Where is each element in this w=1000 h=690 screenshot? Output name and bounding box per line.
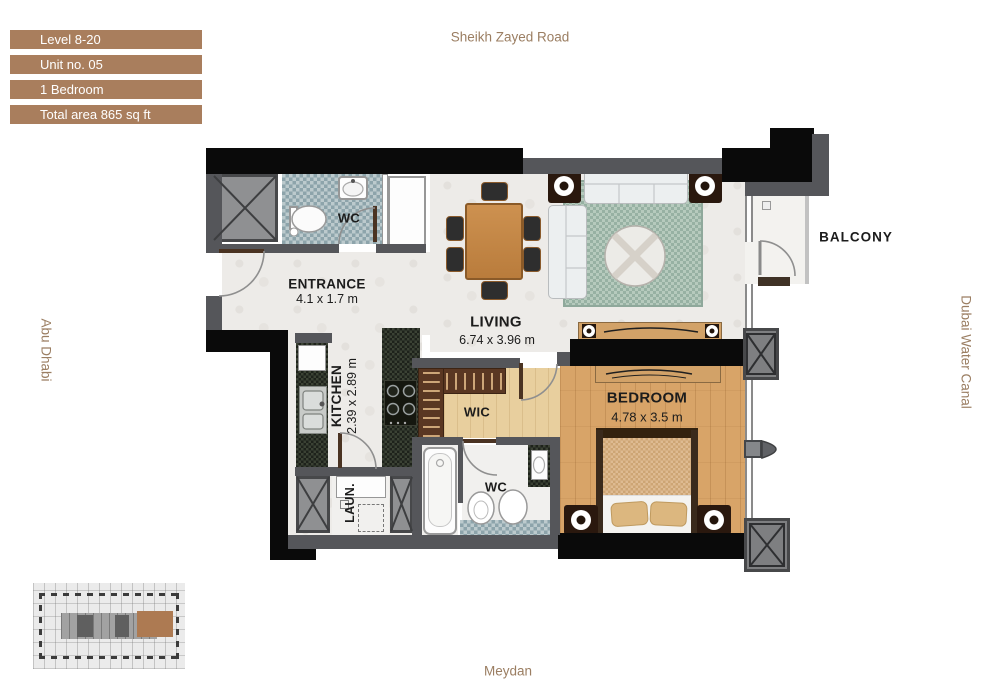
wall-segment bbox=[206, 330, 288, 352]
sofa-left bbox=[548, 205, 587, 299]
key-plan-wall bbox=[39, 593, 179, 596]
living-dims: 6.74 x 3.96 m bbox=[459, 333, 535, 347]
stove bbox=[384, 380, 417, 426]
laundry-label: LAUN. bbox=[343, 483, 357, 523]
kitchen-name: KITCHEN bbox=[329, 365, 344, 427]
column-bottom-right bbox=[744, 518, 790, 572]
surrounding-left: Abu Dhabi bbox=[39, 318, 54, 381]
key-plan-wall bbox=[176, 593, 179, 659]
bed-blanket bbox=[603, 438, 691, 495]
legend-area: Total area 865 sq ft bbox=[10, 105, 202, 124]
key-plan-wall bbox=[39, 656, 179, 659]
floor-balcony bbox=[745, 196, 808, 284]
ac-fin-base bbox=[744, 440, 762, 458]
dining-chair bbox=[523, 247, 541, 272]
floor-plan-page: Level 8-20 Unit no. 05 1 Bedroom Total a… bbox=[0, 0, 1000, 690]
legend-unit: Unit no. 05 bbox=[10, 55, 202, 74]
bed-pillow bbox=[610, 501, 649, 528]
legend-level: Level 8-20 bbox=[10, 30, 202, 49]
wall-segment bbox=[206, 174, 222, 252]
dining-chair bbox=[523, 216, 541, 241]
kitchen-label: KITCHEN 2.39 x 2.89 m bbox=[329, 358, 359, 434]
surrounding-bottom: Meydan bbox=[484, 664, 532, 679]
bedroom-dims: 4.78 x 3.5 m bbox=[611, 410, 683, 425]
wall-segment bbox=[557, 352, 571, 366]
wall-segment bbox=[288, 535, 560, 549]
key-plan-highlighted-unit bbox=[137, 611, 173, 637]
wall-tv bbox=[570, 339, 743, 366]
wall-segment bbox=[270, 350, 288, 560]
wic-label: WIC bbox=[464, 405, 490, 420]
shaft-bottom-right bbox=[390, 476, 413, 533]
surrounding-right: Dubai Water Canal bbox=[959, 295, 974, 409]
wall-segment bbox=[722, 148, 814, 182]
wall-segment bbox=[523, 158, 745, 174]
column-mid-right bbox=[743, 328, 779, 380]
dining-chair bbox=[481, 182, 508, 201]
tv-console bbox=[578, 322, 722, 340]
nightstand-right bbox=[697, 505, 731, 535]
wall-segment bbox=[458, 445, 463, 503]
ac-fin bbox=[762, 441, 776, 458]
wall-segment bbox=[376, 244, 426, 253]
balcony-railing bbox=[805, 196, 809, 284]
entrance-label: ENTRANCE bbox=[288, 277, 365, 292]
wall-segment bbox=[295, 333, 332, 343]
master-wc-label: WC bbox=[485, 480, 507, 495]
wall-segment bbox=[206, 148, 523, 174]
surrounding-top: Sheikh Zayed Road bbox=[451, 30, 570, 45]
wic-closet-left bbox=[418, 368, 444, 438]
nightstand-left bbox=[564, 505, 598, 535]
speaker-left bbox=[548, 170, 581, 203]
kitchen-sink bbox=[299, 386, 327, 434]
master-wc-mosaic-strip bbox=[460, 520, 550, 536]
guest-wc-cistern bbox=[289, 206, 298, 230]
washer-dashed bbox=[358, 504, 384, 532]
key-plan-wall bbox=[39, 593, 42, 659]
balcony-drain bbox=[762, 201, 771, 210]
key-plan-lift bbox=[115, 615, 129, 637]
entrance-closet bbox=[388, 176, 426, 253]
dining-table bbox=[465, 203, 523, 280]
shaft-bottom-left bbox=[296, 476, 330, 533]
wall-segment bbox=[206, 244, 339, 253]
wall-segment bbox=[206, 296, 222, 334]
bathtub-inner bbox=[428, 453, 452, 527]
key-plan bbox=[33, 583, 185, 669]
key-plan-lift bbox=[77, 615, 93, 637]
kitchen-dims: 2.39 x 2.89 m bbox=[345, 358, 359, 434]
bed-footboard bbox=[596, 428, 698, 438]
entrance-dims: 4.1 x 1.7 m bbox=[296, 292, 358, 306]
wall-segment bbox=[295, 467, 422, 476]
fridge bbox=[298, 345, 326, 371]
wall-segment bbox=[412, 358, 520, 368]
living-window bbox=[745, 284, 753, 330]
balcony-label: BALCONY bbox=[819, 230, 893, 245]
dining-chair bbox=[481, 281, 508, 300]
balcony-door-jamb bbox=[745, 196, 753, 242]
bed-pillow bbox=[649, 501, 687, 527]
dining-chair bbox=[446, 247, 464, 272]
balcony-sill bbox=[758, 277, 790, 286]
wall-segment bbox=[412, 437, 422, 540]
legend-type: 1 Bedroom bbox=[10, 80, 202, 99]
master-wc-sink bbox=[531, 450, 548, 480]
bedroom-dresser bbox=[595, 365, 721, 383]
wall-segment bbox=[550, 443, 560, 535]
guest-wc-sink bbox=[338, 176, 368, 200]
dining-chair bbox=[446, 216, 464, 241]
living-label: LIVING bbox=[470, 314, 522, 331]
speaker-right bbox=[689, 170, 722, 203]
guest-wc-label: WC bbox=[338, 211, 360, 226]
bedroom-label: BEDROOM bbox=[607, 390, 687, 407]
wall-segment bbox=[745, 182, 829, 196]
wall-segment bbox=[558, 533, 748, 559]
